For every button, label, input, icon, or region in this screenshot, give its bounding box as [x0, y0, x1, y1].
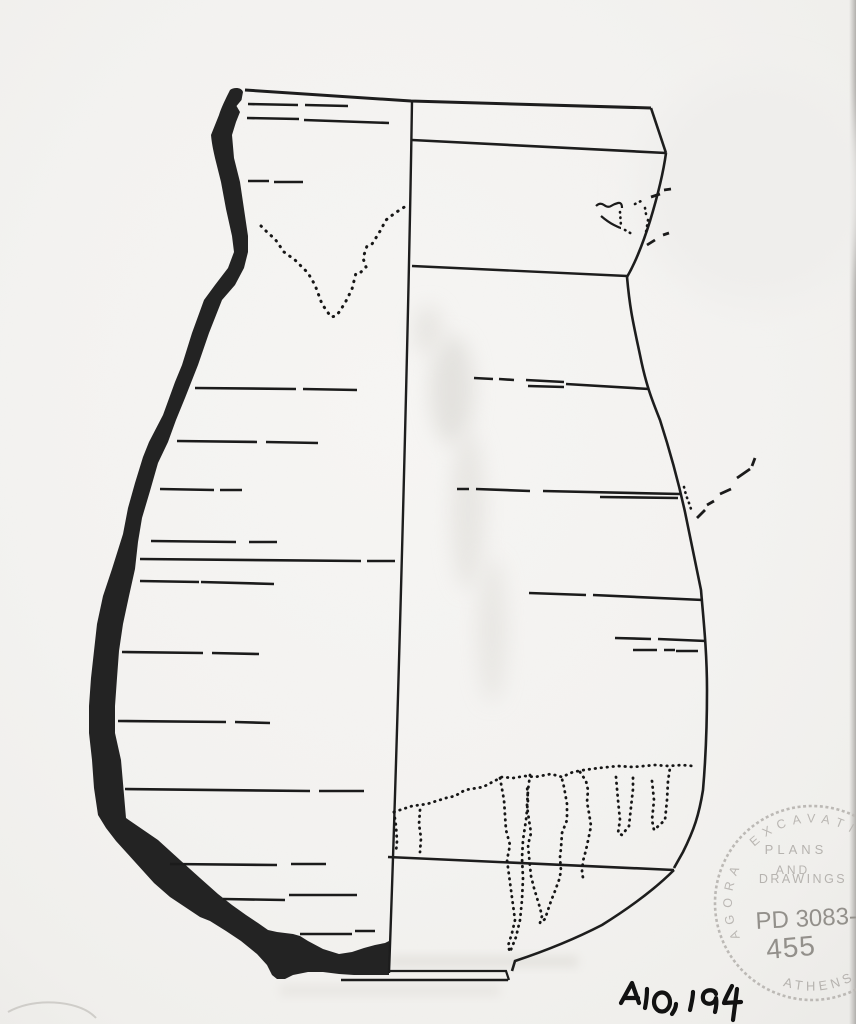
- svg-text:PLANS: PLANS: [765, 842, 828, 857]
- svg-text:455: 455: [765, 930, 817, 965]
- svg-text:DRAWINGS: DRAWINGS: [759, 872, 847, 886]
